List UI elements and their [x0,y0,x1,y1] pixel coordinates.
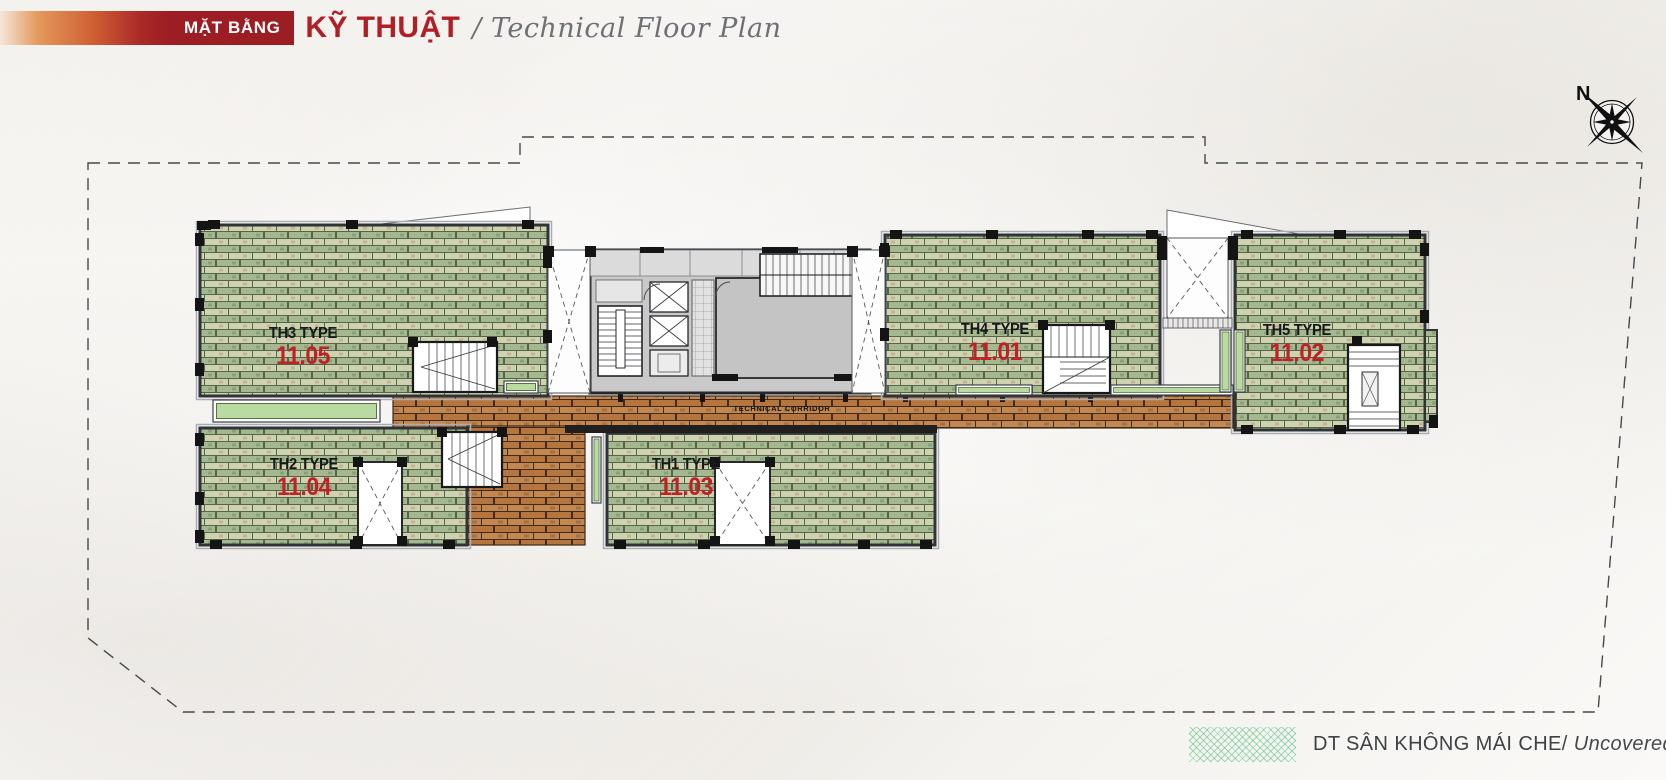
expansion-gap-east [1157,236,1238,328]
unit-number: 11.05 [269,344,337,369]
header-badge: MẶT BẰNG [170,11,294,45]
planter-th4-east [1111,385,1233,395]
unit-label-11-01: TH4 TYPE 11.01 [958,322,1032,365]
unit-label-11-05: TH3 TYPE 11.05 [266,326,340,369]
unit-type-label: TH5 TYPE [1263,323,1331,339]
unit-number: 11.03 [652,475,720,500]
page-title-en: / Technical Floor Plan [472,13,781,44]
planter-long-west [213,400,380,422]
planter-gap-v1 [1220,330,1231,392]
unit-type-label: TH2 TYPE [270,457,338,473]
core-stair-west [598,306,642,376]
compass-icon: N [1576,83,1643,153]
technical-corridor-label: TECHNICAL CORRIDOR [734,404,831,413]
planter-th1-vertical [592,437,601,503]
unit-label-11-04: TH2 TYPE 11.04 [267,457,341,500]
elevator-shafts [650,282,688,376]
th1-top-wall [565,425,937,433]
unit-number: 11.04 [270,475,338,500]
legend-text: DT SÂN KHÔNG MÁI CHE/Uncovered Yard [1313,733,1666,756]
service-riser [692,280,714,376]
compass-north-label: N [1576,83,1590,105]
unit-type-label: TH4 TYPE [961,322,1029,338]
unit-block-th4 [885,235,1160,396]
planter-gap-v2 [1234,330,1245,392]
page-title-vi: KỸ THUẬT [305,11,460,45]
legend-label-vi: DT SÂN KHÔNG MÁI CHE/ [1313,733,1568,755]
stair-th4 [1038,320,1115,393]
expansion-gap-mid [847,246,890,393]
unit-label-11-02: TH5 TYPE 11.02 [1260,323,1334,366]
stair-th5 [1348,336,1400,430]
unit-number: 11.02 [1263,341,1331,366]
unit-block-th5-bump [1425,330,1437,422]
floor-plan-svg: N [0,0,1666,780]
expansion-gap-west [543,246,596,393]
technical-floor-plan-page: MẶT BẰNG KỸ THUẬT / Technical Floor Plan [0,0,1666,780]
service-core [590,247,870,393]
stair-th2 [437,427,507,487]
unit-type-label: TH1 TYPE [652,457,720,473]
stair-th3 [408,337,497,392]
core-stair-east [760,254,866,296]
legend: DT SÂN KHÔNG MÁI CHE/Uncovered Yard [1189,727,1666,762]
planter-th3-small [504,381,538,393]
uncovered-yard-swatch [1189,727,1296,762]
unit-label-11-03: TH1 TYPE 11.03 [649,457,723,500]
planter-th4-west [956,385,1032,395]
page-header: MẶT BẰNG KỸ THUẬT / Technical Floor Plan [0,10,781,46]
legend-label-en: Uncovered Yard [1574,733,1666,755]
vent-shaft-th2 [353,457,407,546]
unit-number: 11.01 [961,340,1029,365]
watercolor-accent-strip [0,11,170,45]
unit-type-label: TH3 TYPE [269,326,337,342]
